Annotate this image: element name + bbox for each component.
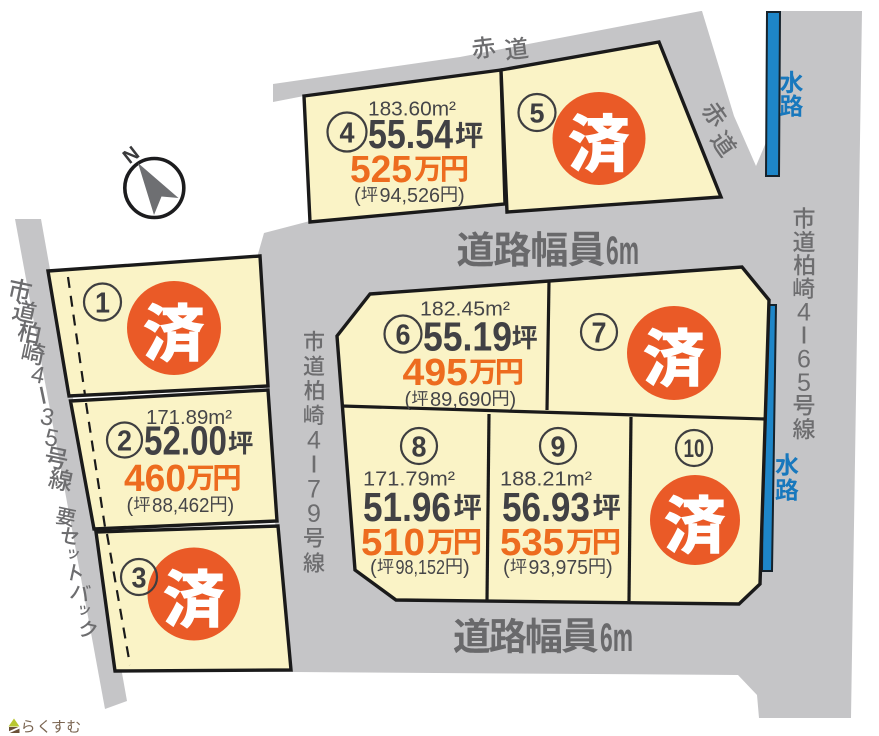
svg-text:): ): [463, 557, 470, 579]
svg-text:460: 460: [124, 458, 186, 500]
svg-text:3: 3: [132, 563, 147, 595]
svg-text:4: 4: [340, 118, 355, 150]
svg-text:(: (: [370, 557, 377, 579]
svg-text:93,975: 93,975: [529, 557, 589, 579]
svg-text:9: 9: [551, 432, 566, 464]
svg-text:6m: 6m: [600, 616, 633, 660]
svg-text:8: 8: [412, 432, 427, 464]
svg-text:5: 5: [797, 369, 811, 397]
svg-text:): ): [228, 495, 235, 517]
svg-text:(: (: [354, 185, 361, 207]
svg-text:): ): [510, 389, 517, 411]
svg-text:4: 4: [29, 361, 48, 390]
svg-text:4: 4: [307, 426, 321, 454]
svg-text:7: 7: [592, 318, 607, 350]
svg-text:6: 6: [396, 320, 411, 352]
svg-text:495: 495: [403, 352, 469, 394]
svg-text:4: 4: [797, 299, 811, 327]
svg-text:(: (: [503, 557, 510, 579]
svg-text:(: (: [127, 495, 134, 517]
svg-text:98,152: 98,152: [396, 557, 446, 579]
svg-text:2: 2: [117, 426, 132, 458]
svg-text:10: 10: [684, 435, 705, 463]
svg-text:5: 5: [530, 98, 545, 129]
svg-text:88,462: 88,462: [152, 495, 210, 517]
svg-text:1: 1: [95, 288, 110, 320]
svg-text:(: (: [405, 389, 412, 411]
svg-text:94,526: 94,526: [380, 185, 441, 207]
svg-text:89,690: 89,690: [430, 389, 492, 411]
svg-text:): ): [458, 185, 465, 207]
svg-text:): ): [606, 557, 613, 579]
svg-text:52.00: 52.00: [144, 418, 227, 464]
svg-text:9: 9: [307, 500, 321, 528]
svg-text:6m: 6m: [606, 229, 639, 273]
